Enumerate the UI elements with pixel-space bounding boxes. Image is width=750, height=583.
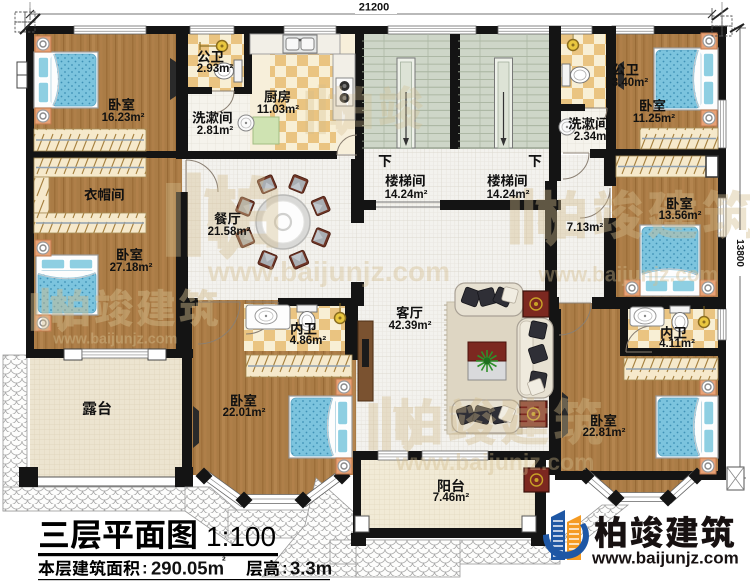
svg-text:11.25m²: 11.25m² [633,113,675,125]
svg-text:2.81m²: 2.81m² [197,125,234,137]
svg-text:14.24m²: 14.24m² [385,189,428,201]
svg-text:14.24m²: 14.24m² [487,189,530,201]
svg-text:42.39m²: 42.39m² [389,320,432,332]
svg-text:www.baijunjz.com: www.baijunjz.com [207,256,450,287]
svg-text:4.11m²: 4.11m² [659,338,695,350]
svg-text:13.56m²: 13.56m² [659,210,702,222]
svg-text:3.40m²: 3.40m² [612,77,649,89]
svg-text:www.baijunjz.com: www.baijunjz.com [395,449,595,475]
svg-text:2.93m²: 2.93m² [197,63,234,75]
svg-text::: : [282,558,288,577]
svg-text:7.46m²: 7.46m² [433,492,470,504]
svg-text:290.05m: 290.05m [151,557,224,578]
svg-text:27.18m²: 27.18m² [110,262,153,274]
svg-text:2.34m²: 2.34m² [574,131,611,143]
svg-text:²: ² [222,556,226,568]
svg-text:22.81m²: 22.81m² [583,427,626,439]
svg-text:3.3m: 3.3m [290,557,332,578]
svg-text:www.baijunjz.com: www.baijunjz.com [52,331,177,347]
svg-text:www.baijunjz.com: www.baijunjz.com [538,264,719,287]
svg-text:11.03m²: 11.03m² [257,104,299,116]
svg-text:13800: 13800 [734,239,745,267]
svg-text:www.baijunjz.com: www.baijunjz.com [591,548,739,567]
svg-text:7.13m²: 7.13m² [567,222,604,234]
svg-text:22.01m²: 22.01m² [223,407,266,419]
svg-text::: : [142,558,148,577]
svg-text:21.58m²: 21.58m² [208,226,251,238]
svg-text:21200: 21200 [359,2,390,14]
svg-text:1:100: 1:100 [206,521,276,552]
svg-text:4.86m²: 4.86m² [290,335,327,347]
svg-text:16.23m²: 16.23m² [102,112,145,124]
